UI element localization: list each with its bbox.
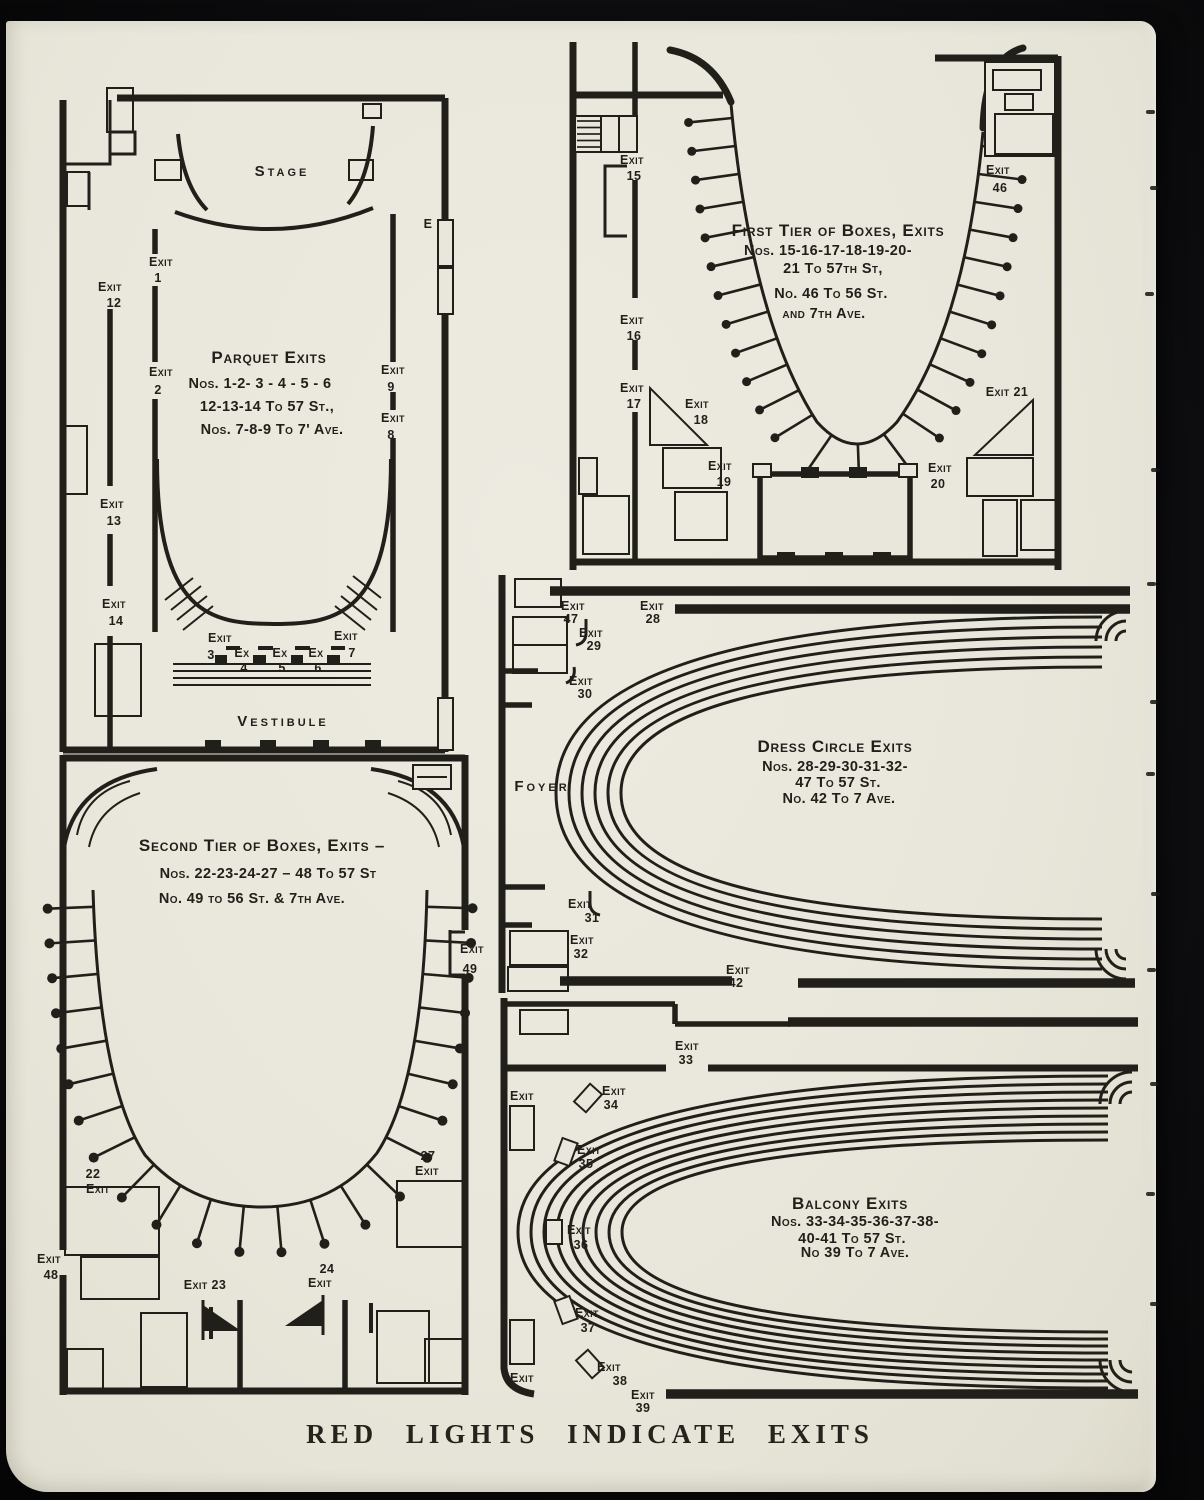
exit-1-label: Exit — [149, 255, 173, 269]
exit-37-label: Exit — [575, 1306, 599, 1320]
exit-12-label: Exit — [98, 280, 122, 294]
first-tier-exit-labels: Exit 15 Exit 16 Exit 17 Exit 18 Exit 19 … — [620, 153, 1028, 491]
exit-2-label: Exit — [149, 365, 173, 379]
exit-7-label: Exit — [334, 629, 358, 643]
balcony-plan: Balcony Exits Nos. 33-34-35-36-37-38- 40… — [490, 990, 1155, 1418]
exit-4-number: 4 — [240, 661, 247, 675]
exit-5-label: Ex — [272, 646, 287, 660]
exit-42-number: 42 — [729, 976, 744, 990]
exit-46-label: Exit — [986, 163, 1010, 177]
exit-36-number: 36 — [574, 1238, 589, 1252]
vestibule-label: Vestibule — [237, 713, 328, 730]
parquet-line-2: 12-13-14 To 57 St., — [200, 399, 334, 415]
exit-6-label: Ex — [308, 646, 323, 660]
exit-27-number: 27 — [421, 1149, 436, 1163]
exit-46-number: 46 — [993, 181, 1008, 195]
exit-5-number: 5 — [278, 661, 285, 675]
exit-39-number: 39 — [636, 1401, 651, 1415]
exit-28-label: Exit — [640, 599, 664, 613]
dress-circle-line-1: Nos. 28-29-30-31-32- — [762, 759, 908, 775]
first-tier-line-1: Nos. 15-16-17-18-19-20- — [744, 243, 912, 259]
parquet-windows — [363, 104, 453, 750]
exit-34-label: Exit — [602, 1084, 626, 1098]
balcony-line-1: Nos. 33-34-35-36-37-38- — [771, 1214, 939, 1230]
parquet-plan: Stage Vestibule E Parquet Exits Nos. 1-2… — [55, 14, 460, 754]
scanned-program-page: { "page": { "footer": "RED LIGHTS INDICA… — [0, 0, 1204, 1500]
exit-21-label: Exit 21 — [986, 385, 1029, 399]
exit-left-top-label: Exit — [510, 1089, 534, 1103]
exit-18-label: Exit — [685, 397, 709, 411]
exit-42-label: Exit — [726, 963, 750, 977]
binding-mark — [1151, 468, 1160, 472]
exit-31-number: 31 — [585, 911, 600, 925]
second-tier-stairs — [65, 1181, 465, 1391]
exit-9-number: 9 — [387, 380, 394, 394]
second-tier-title: Second Tier of Boxes, Exits – — [139, 836, 385, 855]
exit-38-label: Exit — [597, 1360, 621, 1374]
exit-18-number: 18 — [694, 413, 709, 427]
exit-33-label: Exit — [675, 1039, 699, 1053]
exit-15-label: Exit — [620, 153, 644, 167]
parquet-line-1: Nos. 1-2- 3 - 4 - 5 - 6 — [189, 376, 332, 392]
exit-23-label: Exit 23 — [184, 1278, 227, 1292]
parquet-floor-outline — [157, 459, 391, 750]
first-tier-title: First Tier of Boxes, Exits — [732, 221, 945, 240]
exit-48-number: 48 — [44, 1268, 59, 1282]
exit-3-label: Exit — [208, 631, 232, 645]
exit-32-number: 32 — [574, 947, 589, 961]
dress-circle-title: Dress Circle Exits — [757, 737, 912, 756]
first-tier-lobby-structure — [753, 464, 917, 563]
exit-14-label: Exit — [102, 597, 126, 611]
exit-17-number: 17 — [627, 397, 642, 411]
exit-4-label: Ex — [234, 646, 249, 660]
exit-22-number: 22 — [86, 1167, 101, 1181]
exit-49-number: 49 — [463, 962, 478, 976]
second-tier-plan: Second Tier of Boxes, Exits – Nos. 22-23… — [25, 755, 485, 1400]
exit-34-number: 34 — [604, 1098, 619, 1112]
exit-28-number: 28 — [646, 612, 661, 626]
stage-label: Stage — [255, 163, 310, 180]
exit-47-number: 47 — [564, 612, 579, 626]
exit-13-number: 13 — [107, 514, 122, 528]
footer-caption: RED LIGHTS INDICATE EXITS — [30, 1419, 1150, 1450]
exit-31-label: Exit — [568, 897, 592, 911]
binding-mark — [1145, 292, 1154, 296]
exit-8-label: Exit — [381, 411, 405, 425]
exit-29-label: Exit — [579, 626, 603, 640]
exit-20-label: Exit — [928, 461, 952, 475]
exit-15-number: 15 — [627, 169, 642, 183]
dress-circle-exit-labels: Exit 47 Exit 28 Exit 29 Exit 30 Exit 31 … — [561, 599, 750, 990]
first-tier-line-4: and 7th Ave. — [782, 306, 865, 322]
exit-24-label: Exit — [308, 1276, 332, 1290]
second-tier-exit-labels: Exit 49 22 Exit 27 Exit Exit 48 Exit 23 … — [37, 942, 484, 1292]
exit-left-bottom-label: Exit — [510, 1371, 534, 1385]
exit-14-number: 14 — [109, 614, 124, 628]
exit-30-label: Exit — [569, 674, 593, 688]
parquet-title: Parquet Exits — [211, 348, 326, 367]
binding-mark — [1150, 186, 1159, 190]
exit-38-number: 38 — [613, 1374, 628, 1388]
exit-47-label: Exit — [561, 599, 585, 613]
exit-19-label: Exit — [708, 459, 732, 473]
exit-16-label: Exit — [620, 313, 644, 327]
exit-19-number: 19 — [717, 475, 732, 489]
exit-17-label: Exit — [620, 381, 644, 395]
exit-36-label: Exit — [567, 1223, 591, 1237]
dress-circle-line-3: No. 42 To 7 Ave. — [783, 791, 896, 807]
exit-8-number: 8 — [387, 428, 394, 442]
box-divider-spokes — [43, 903, 478, 1257]
second-tier-line-2: No. 49 to 56 St. & 7th Ave. — [159, 891, 345, 907]
first-tier-line-2: 21 To 57th St, — [783, 261, 883, 277]
exit-9-label: Exit — [381, 363, 405, 377]
exit-49-label: Exit — [460, 942, 484, 956]
exit-24-number: 24 — [320, 1262, 335, 1276]
first-tier-line-3: No. 46 To 56 St. — [774, 286, 888, 302]
exit-29-number: 29 — [587, 639, 602, 653]
exit-2-number: 2 — [154, 383, 161, 397]
exit-1-number: 1 — [154, 271, 161, 285]
parquet-exit-labels: Exit 1 Exit 12 Exit 2 Exit 9 Exit 8 Exit… — [98, 255, 405, 675]
exit-20-number: 20 — [931, 477, 946, 491]
second-tier-line-1: Nos. 22-23-24-27 – 48 To 57 St — [160, 866, 377, 882]
exit-13-label: Exit — [100, 497, 124, 511]
balcony-title: Balcony Exits — [792, 1194, 908, 1213]
second-tier-box-rail — [93, 890, 427, 1207]
exit-48-label: Exit — [37, 1252, 61, 1266]
exit-37-number: 37 — [581, 1321, 596, 1335]
exit-32-label: Exit — [570, 933, 594, 947]
exit-35-label: Exit — [577, 1143, 601, 1157]
parquet-line-3: Nos. 7-8-9 To 7' Ave. — [201, 422, 344, 438]
second-tier-doors — [203, 1295, 371, 1391]
exit-33-number: 33 — [679, 1053, 694, 1067]
foyer-label: Foyer — [514, 778, 569, 795]
dress-circle-plan: Foyer Dress Circle Exits Nos. 28-29-30-3… — [490, 575, 1155, 1000]
exit-30-number: 30 — [578, 687, 593, 701]
exit-6-number: 6 — [314, 661, 321, 675]
exit-16-number: 16 — [627, 329, 642, 343]
balcony-line-3: No 39 To 7 Ave. — [801, 1245, 910, 1261]
first-tier-plan: First Tier of Boxes, Exits Nos. 15-16-17… — [555, 40, 1065, 570]
binding-mark — [1146, 110, 1155, 114]
exit-39-label: Exit — [631, 1388, 655, 1402]
balcony-exit-labels: Exit 33 Exit Exit 34 Exit 35 Exit 36 Exi… — [510, 1039, 699, 1415]
exit-3-number: 3 — [207, 648, 214, 662]
exit-27-label: Exit — [415, 1164, 439, 1178]
exit-12-number: 12 — [107, 296, 122, 310]
exit-7-number: 7 — [348, 646, 355, 660]
exit-22-label: Exit — [86, 1182, 110, 1196]
dress-circle-line-2: 47 To 57 St. — [795, 775, 881, 791]
exit-35-number: 35 — [579, 1157, 594, 1171]
wall-letter-e: E — [424, 217, 433, 231]
